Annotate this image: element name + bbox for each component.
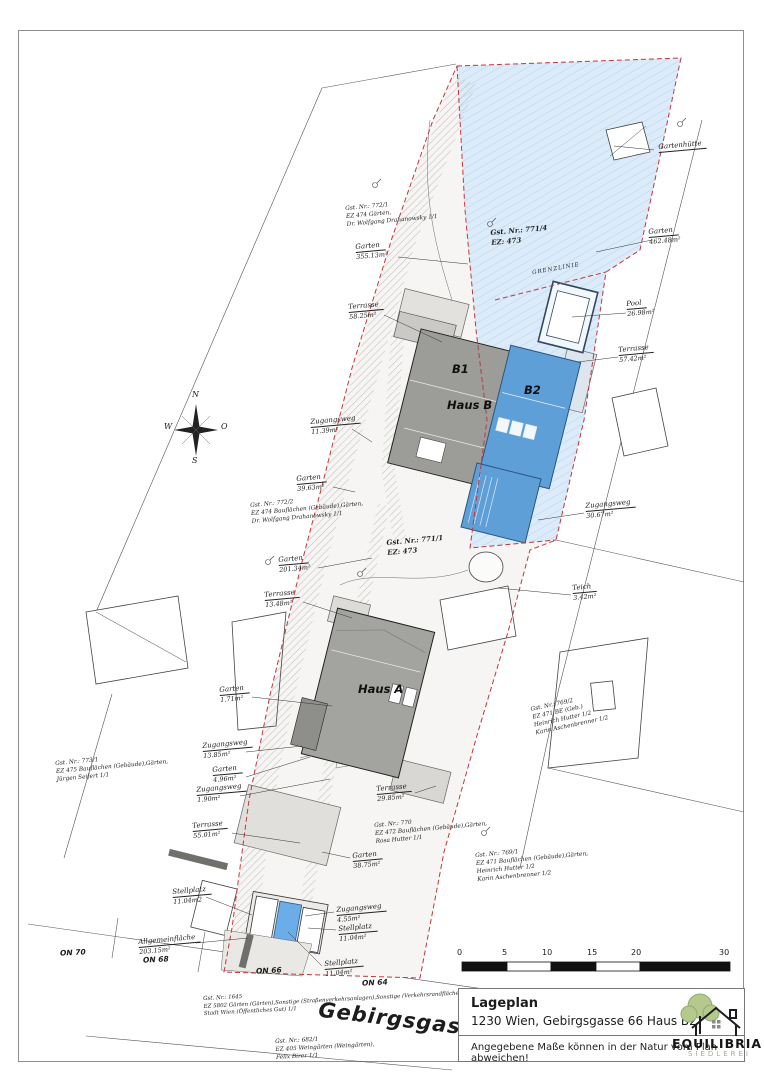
- label-terrasse-55: Terrasse55.01m²: [192, 819, 229, 840]
- compass-north: N: [192, 390, 199, 399]
- compass-east: O: [221, 422, 228, 431]
- compass-south: S: [192, 456, 197, 465]
- label-terrasse-58: Terrasse58.25m²: [348, 300, 385, 321]
- label-teich: Teich3.42m²: [572, 582, 597, 602]
- building-label-b1: B1: [452, 362, 469, 376]
- label-garten-1: Garten1.71m²: [219, 683, 250, 703]
- wall-slab-1: [168, 849, 228, 870]
- building-label-b2: B2: [524, 383, 541, 397]
- pond: [469, 552, 503, 582]
- compass-west: W: [164, 422, 172, 431]
- parcel-682-1: Gst. Nr.: 682/1 EZ 405 Weingärten (Weing…: [275, 1033, 375, 1062]
- label-terrasse-13: Terrasse13.48m²: [264, 588, 301, 609]
- scale-tick-20: 20: [631, 948, 641, 957]
- label-garten-462: Garten462.48m²: [648, 225, 681, 246]
- label-terrasse-29: Terrasse29.85m²: [376, 782, 413, 803]
- equilibria-logo: EQUILIBRIA SIEDLEREI: [648, 990, 748, 1062]
- house-number-on66: ON 66: [256, 965, 282, 975]
- building-label-haus-a: Haus A: [358, 682, 403, 696]
- label-terrasse-57: Terrasse57.42m²: [618, 343, 655, 364]
- scale-bar: [462, 962, 730, 971]
- label-garten-4: Garten4.96m²: [212, 763, 243, 783]
- scale-tick-0: 0: [457, 948, 462, 957]
- house-number-on64: ON 64: [362, 977, 388, 987]
- house-number-on70: ON 70: [60, 947, 86, 957]
- logo-subtitle: SIEDLEREI: [688, 1050, 751, 1058]
- label-stellplatz-mid: Stellplatz11.04m²: [338, 922, 378, 943]
- label-pool: Pool26.98m²: [626, 298, 655, 318]
- label-stellplatz-bottom: Stellplatz11.04m²: [324, 957, 364, 978]
- building-label-haus-b: Haus B: [447, 398, 492, 412]
- scale-tick-15: 15: [587, 948, 597, 957]
- label-garten-355: Garten355.13m²: [355, 240, 388, 261]
- scale-tick-5: 5: [502, 948, 507, 957]
- logo-name: EQUILIBRIA: [672, 1036, 762, 1051]
- label-garten-201: Garten201.34m²: [278, 553, 311, 574]
- label-garten-38: Garten38.75m²: [352, 849, 383, 869]
- label-garten-39: Garten39.63m²: [296, 472, 327, 492]
- scale-tick-30: 30: [719, 948, 729, 957]
- site-plan-sheet: N O S W Gartenhütte Garten462.48m² Garte…: [0, 0, 764, 1080]
- house-number-on68: ON 68: [143, 954, 169, 964]
- label-stellplatz-left: Stellplatz11.04m2: [172, 885, 212, 906]
- compass-rose: [174, 404, 218, 456]
- scale-tick-10: 10: [542, 948, 552, 957]
